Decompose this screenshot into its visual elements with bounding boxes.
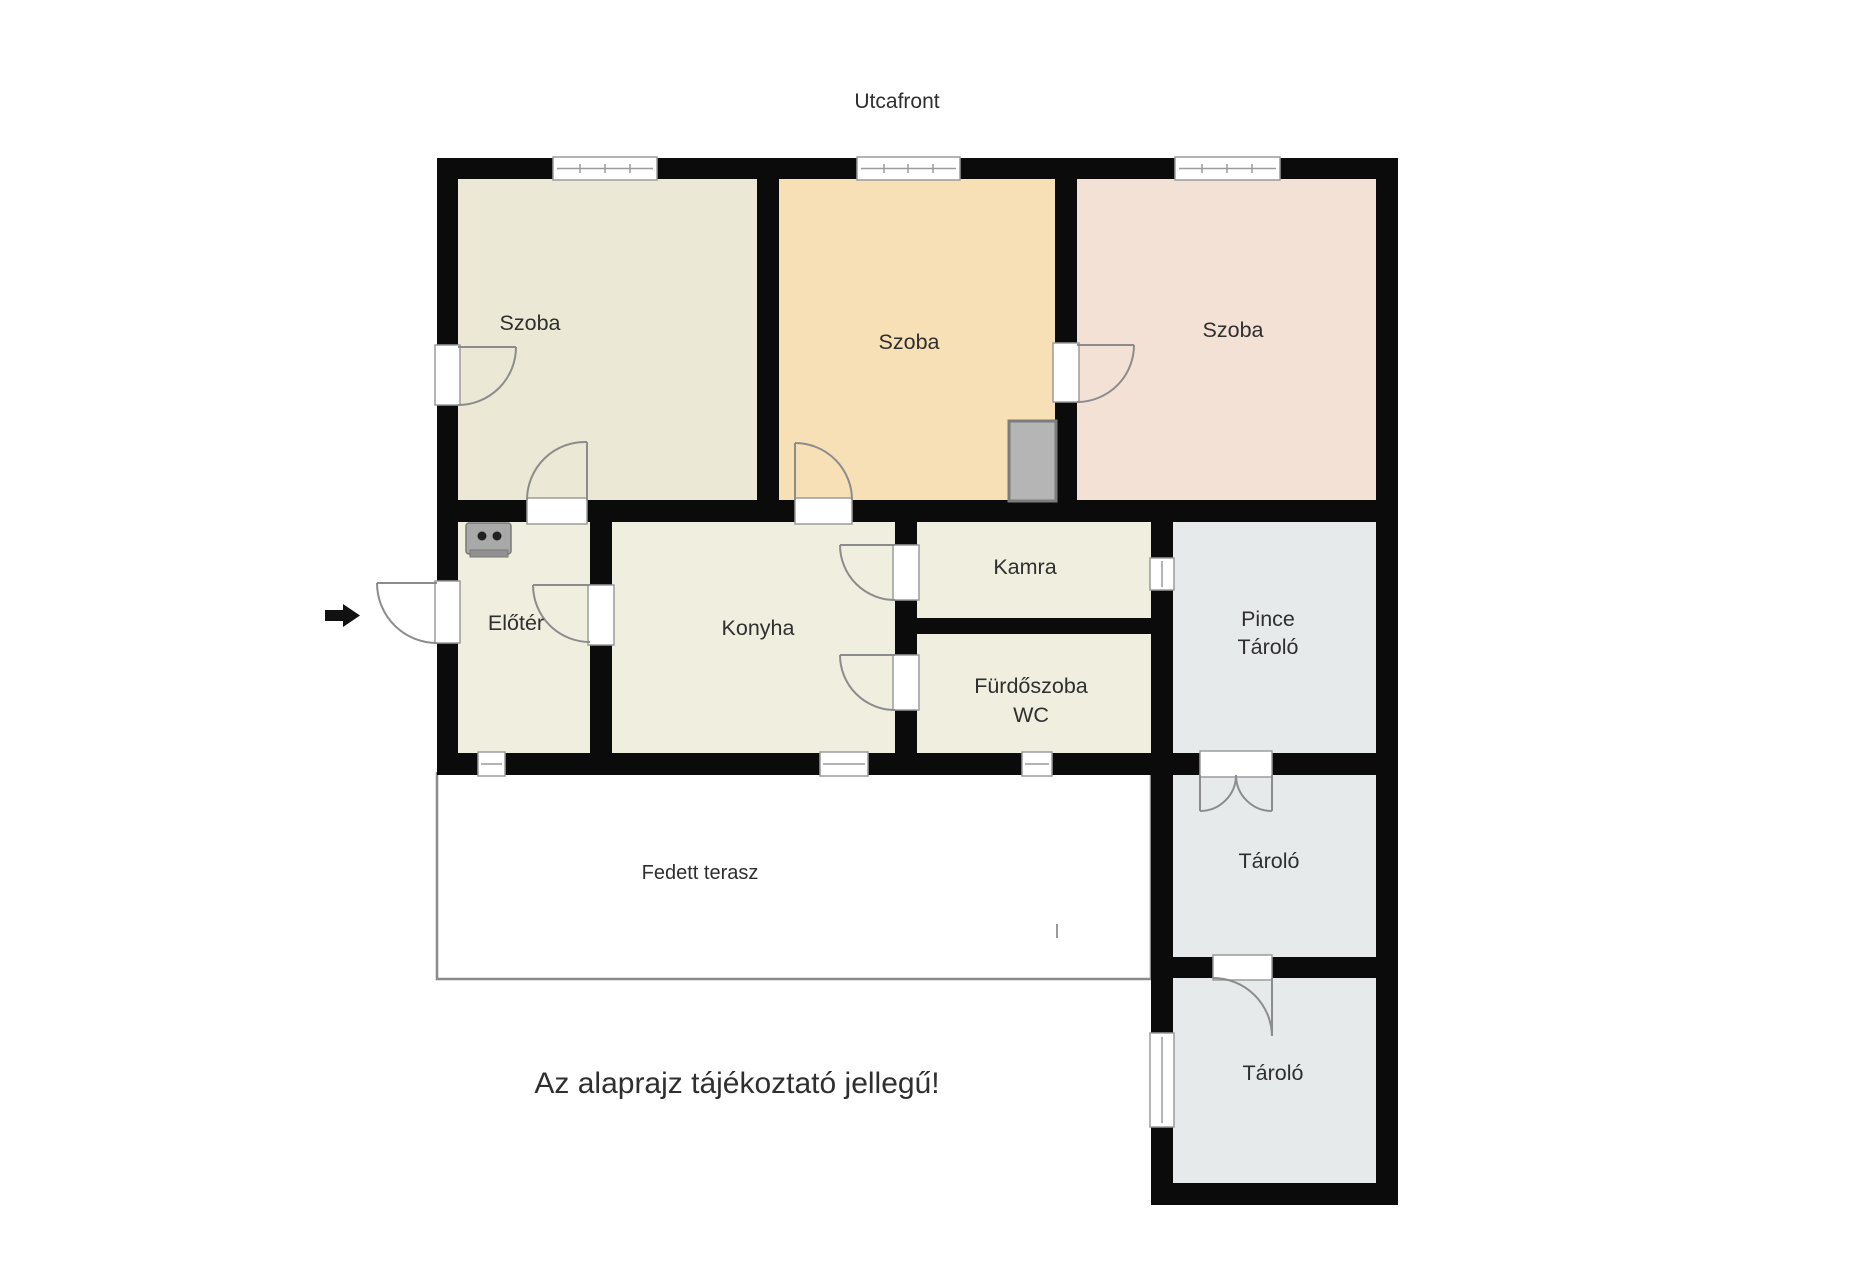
wall-right-outer — [1376, 158, 1398, 1205]
door-sill-pince-tarolo — [1200, 751, 1272, 777]
wall-tarolo-divider — [1151, 957, 1398, 978]
window-furdoszoba-bottom — [1022, 752, 1052, 776]
wall-left-outer — [437, 158, 458, 775]
wall-eloter-konyha — [590, 522, 612, 775]
window-szoba3-top — [1175, 157, 1280, 180]
room-label-furdoszoba-line2: WC — [1013, 703, 1049, 727]
furnace-icon — [1009, 421, 1056, 501]
terrace-area — [437, 775, 1151, 979]
stove-icon — [466, 523, 511, 557]
street-side-label: Utcafront — [854, 90, 939, 113]
window-tarolo-also-left — [1150, 1033, 1174, 1127]
door-sill-szoba1-left — [435, 345, 460, 405]
room-label-tarolo-upper: Tároló — [1239, 849, 1300, 873]
door-entrance — [377, 583, 437, 643]
terrace-label: Fedett terasz — [642, 862, 759, 884]
door-sill-entrance — [435, 581, 460, 643]
door-sill-szoba1-eloter — [527, 498, 587, 524]
room-label-pince-line2: Tároló — [1238, 635, 1299, 659]
window-eloter-bottom — [478, 752, 505, 776]
room-label-tarolo-lower: Tároló — [1243, 1061, 1304, 1085]
door-sill-szoba2-konyha — [795, 498, 852, 524]
room-label-furdoszoba-line1: Fürdőszoba — [974, 674, 1088, 698]
room-szoba1-fill — [440, 160, 770, 515]
floor-plan-canvas: Utcafront Szoba Szoba Szoba Előtér Konyh… — [0, 0, 1871, 1280]
room-label-eloter: Előtér — [488, 611, 544, 635]
window-szoba2-top — [857, 157, 960, 180]
door-sill-tarolo-tarolo — [1213, 955, 1272, 980]
room-label-pince-line1: Pince — [1241, 607, 1295, 631]
room-eloter-fill — [440, 505, 600, 765]
room-label-szoba3: Szoba — [1203, 318, 1264, 342]
room-label-konyha: Konyha — [722, 616, 795, 640]
wall-column-bottom — [1151, 1183, 1398, 1205]
wall-szoba1-szoba2 — [757, 158, 779, 522]
door-sill-konyha-furdoszoba — [893, 655, 919, 710]
door-sill-szoba2-szoba3 — [1053, 343, 1079, 402]
floor-plan-page: Utcafront Szoba Szoba Szoba Előtér Konyh… — [0, 0, 1871, 1280]
wall-kamra-furdoszoba — [906, 618, 1162, 634]
room-label-szoba1: Szoba — [500, 311, 561, 335]
window-kamra-pince — [1150, 558, 1174, 590]
window-konyha-bottom — [820, 752, 868, 776]
disclaimer-note: Az alaprajz tájékoztató jellegű! — [534, 1067, 939, 1100]
terrace — [437, 772, 1151, 979]
door-sill-konyha-kamra — [893, 545, 919, 600]
room-label-kamra: Kamra — [993, 555, 1056, 579]
door-sill-eloter-konyha — [588, 585, 614, 645]
entrance-arrow-icon — [325, 604, 360, 627]
room-label-szoba2: Szoba — [879, 330, 940, 354]
wall-szoba2-szoba3 — [1055, 158, 1077, 522]
window-szoba1-top — [553, 157, 657, 180]
